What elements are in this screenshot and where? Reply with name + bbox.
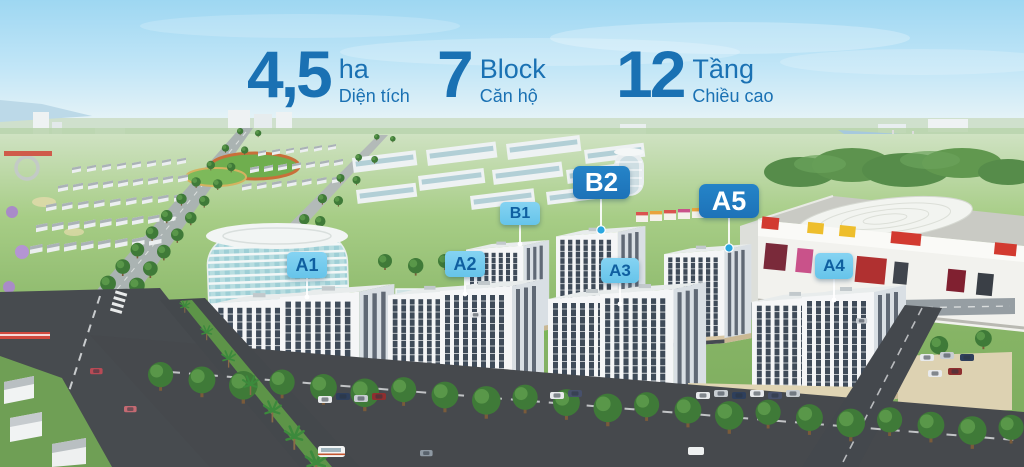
stat-floors-value: 12 bbox=[616, 47, 683, 106]
stat-floors-unit: Tầng bbox=[692, 56, 773, 84]
aerial-masterplan-render: 4,5 ha Diện tích 7 Block Căn hộ 12 Tầng … bbox=[0, 0, 1024, 467]
building-label-a5: A5 bbox=[699, 184, 759, 218]
building-label-b1: B1 bbox=[500, 202, 540, 225]
building-label-a2: A2 bbox=[445, 251, 485, 277]
building-label-a3: A3 bbox=[601, 258, 639, 283]
stat-blocks: 7 Block Căn hộ bbox=[437, 47, 546, 106]
stat-area-label: Diện tích bbox=[339, 87, 410, 107]
stat-area-unit: ha bbox=[339, 56, 410, 84]
building-label-a1: A1 bbox=[287, 252, 327, 278]
stat-floors: 12 Tầng Chiều cao bbox=[616, 47, 773, 106]
stat-floors-label: Chiều cao bbox=[692, 87, 773, 107]
stat-blocks-value: 7 bbox=[437, 47, 471, 106]
stat-blocks-unit: Block bbox=[480, 56, 546, 84]
van bbox=[688, 447, 704, 455]
bus bbox=[318, 446, 345, 457]
stat-area: 4,5 ha Diện tích bbox=[247, 47, 410, 106]
building-label-b2: B2 bbox=[573, 166, 630, 199]
building-label-a4: A4 bbox=[815, 253, 853, 279]
stat-blocks-label: Căn hộ bbox=[480, 87, 546, 107]
stat-area-value: 4,5 bbox=[247, 47, 330, 106]
